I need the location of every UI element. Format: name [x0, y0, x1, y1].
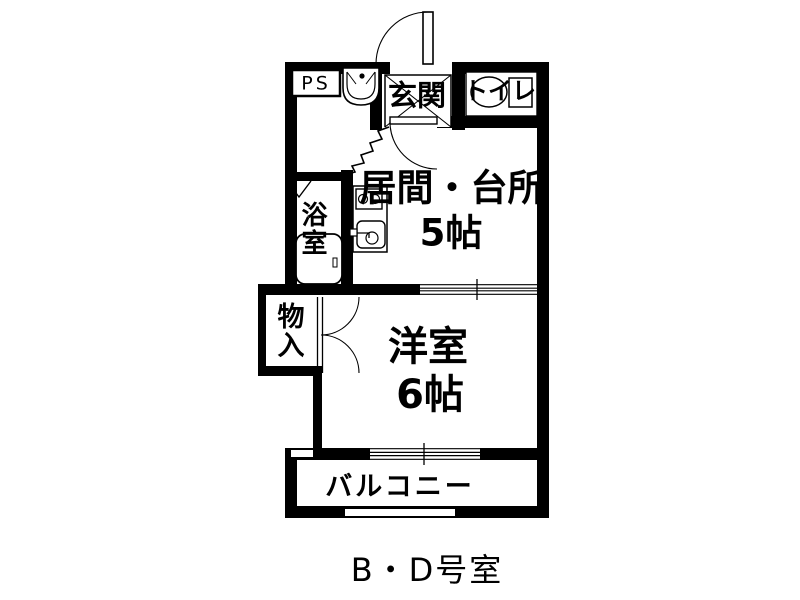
closet-double-doors: [318, 297, 360, 373]
entrance-door-arc: [376, 12, 428, 64]
label-living-kitchen: 居間・台所: [360, 170, 545, 207]
label-bathroom: 浴室: [299, 201, 325, 257]
label-balcony: バルコニー: [325, 474, 474, 501]
label-living-kitchen-size: 5帖: [420, 215, 483, 252]
label-western-room: 洋室: [388, 327, 468, 367]
label-ps: PS: [301, 75, 331, 94]
entrance-door-leaf: [423, 12, 433, 64]
label-toilet: トイレ: [464, 79, 536, 103]
label-closet: 物入: [275, 302, 302, 360]
floor-plan: PS 玄関 トイレ 浴室 居間・台所 5帖 物入 洋室 6帖 バルコニー B・D…: [0, 0, 800, 600]
interior-door-leaf: [390, 117, 437, 124]
label-western-room-size: 6帖: [396, 375, 464, 415]
washbasin-icon: [343, 68, 379, 105]
interior-door-arc: [390, 122, 437, 169]
caption-room-number: B・D号室: [351, 554, 504, 586]
label-entrance: 玄関: [388, 82, 446, 111]
partition-sliding-window: [420, 279, 537, 300]
balcony-sliding-window: [370, 443, 480, 465]
